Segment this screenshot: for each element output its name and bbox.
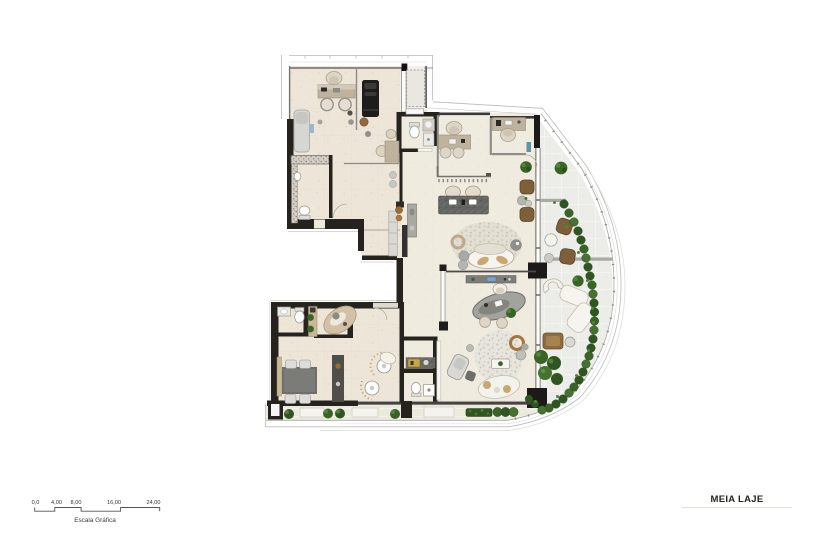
svg-text:4,00: 4,00 [51, 500, 62, 506]
svg-text:0,0: 0,0 [32, 500, 40, 506]
svg-text:24,00: 24,00 [147, 500, 161, 506]
svg-text:Escala Gráfica: Escala Gráfica [74, 517, 116, 524]
svg-text:8,00: 8,00 [71, 500, 82, 506]
svg-text:MEIA LAJE: MEIA LAJE [710, 494, 763, 505]
svg-text:16,00: 16,00 [107, 500, 121, 506]
